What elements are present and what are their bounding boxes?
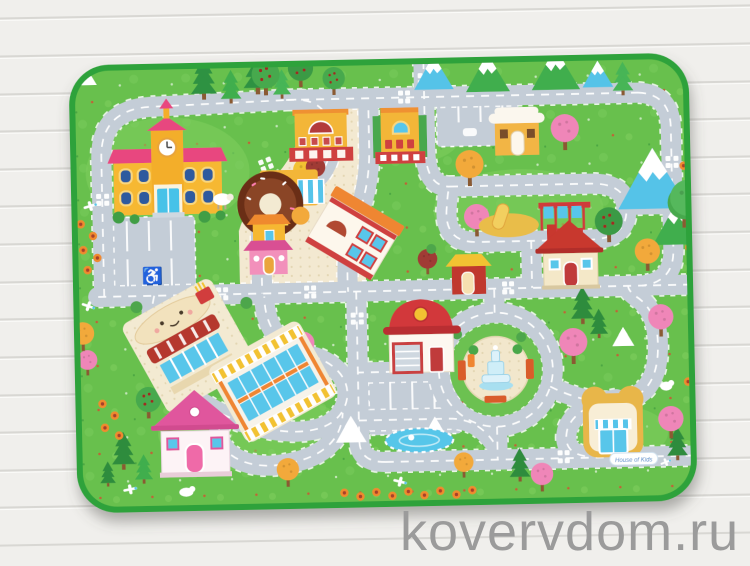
disabled-parking-icon: ♿	[142, 266, 164, 286]
watermark-text: kovervdom.ru	[400, 502, 739, 562]
bench	[526, 359, 534, 379]
red-kiosk	[445, 254, 492, 295]
bench	[484, 395, 506, 402]
theater-building	[288, 109, 353, 162]
town-hall-building	[372, 107, 427, 164]
product-photo: ♿	[0, 0, 750, 566]
brand-label-text: House of Kids	[615, 457, 652, 464]
yellow-cottage	[488, 107, 545, 156]
play-mat-rug: ♿	[66, 39, 713, 514]
bread-kiosk	[581, 386, 644, 458]
fire-hydrant	[468, 354, 475, 367]
bakery-house	[243, 240, 294, 275]
bench	[458, 360, 466, 380]
parking-lot-school: ♿	[105, 216, 197, 294]
